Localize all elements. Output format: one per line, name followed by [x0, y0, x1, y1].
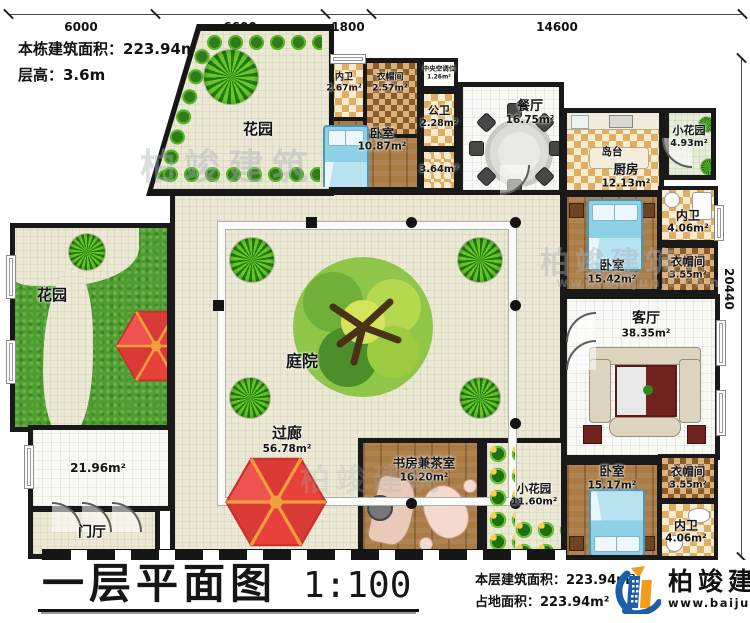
sofa — [609, 417, 681, 437]
floor-plan: 6000 6600 1800 14600 20440 本栋建筑面积：223.94… — [0, 0, 750, 623]
dim-top-4: 14600 — [536, 20, 578, 34]
room-garden-left — [10, 223, 172, 432]
window — [716, 390, 726, 436]
brand-logo-icon — [615, 564, 661, 614]
room-label: 内卫 4.06m² — [665, 519, 706, 546]
room-label: 客厅 38.35m² — [622, 311, 671, 340]
building-area-text: 本栋建筑面积：223.94m² — [18, 38, 203, 59]
brand-name: 柏竣建筑 — [668, 568, 750, 596]
room-label: 岛台 — [602, 146, 623, 158]
column — [306, 217, 317, 228]
rug — [615, 365, 677, 417]
brand-logo: 柏竣建筑 www.baijunjz.com — [615, 564, 750, 614]
sink-icon — [664, 192, 680, 208]
window — [24, 445, 34, 489]
room-label: 衣帽间 3.55m² — [669, 466, 707, 491]
room-label: 卧室 15.17m² — [588, 464, 637, 491]
stove-icon — [609, 115, 633, 128]
room-label: 公卫 2.28m² — [420, 105, 458, 129]
window — [330, 54, 366, 64]
palm-icon — [69, 234, 105, 270]
window — [6, 340, 16, 384]
room-label: 庭院 — [286, 353, 318, 372]
room-label: 21.96m² — [70, 461, 126, 475]
room-label: 3.64m² — [419, 164, 458, 176]
room-label: 厨房 12.13m² — [602, 162, 651, 189]
sink-icon — [571, 115, 589, 129]
plan-title: 一层平面图 — [42, 563, 277, 605]
palm-icon — [230, 378, 270, 418]
room-label: 过廊 56.78m² — [263, 425, 312, 455]
sofa — [679, 359, 701, 423]
room-label: 小花园 4.93m² — [670, 125, 708, 149]
dim-right: 20440 — [722, 268, 736, 310]
side-table — [687, 425, 706, 444]
room-label: 卧室 10.87m² — [358, 127, 407, 154]
palm-icon — [204, 50, 258, 104]
room-label: 餐厅 16.75m² — [506, 99, 555, 127]
palm-icon — [230, 238, 274, 282]
palm-icon — [458, 238, 502, 282]
window — [716, 320, 726, 366]
room-label: 中央空调位 1.26m² — [423, 66, 456, 81]
room-label: 小花园 11.60m² — [511, 482, 557, 507]
room-label: 内卫 2.67m² — [326, 72, 362, 93]
room-label: 衣帽间 3.55m² — [669, 256, 707, 281]
room-label: 花园 — [37, 287, 67, 305]
palm-icon — [460, 378, 500, 418]
dim-top-3: 1800 — [331, 20, 364, 34]
land-area-text: 占地面积：223.94m² — [475, 592, 635, 614]
column — [406, 498, 417, 509]
column — [406, 217, 417, 228]
column — [213, 300, 224, 311]
column — [510, 418, 521, 429]
room-label: 内卫 4.06m² — [667, 209, 708, 236]
area-summary: 本层建筑面积：223.94m² 占地面积：223.94m² — [475, 570, 635, 614]
room-label: 卧室 15.42m² — [588, 258, 637, 285]
window — [6, 255, 16, 299]
side-table — [583, 425, 602, 444]
nightstand — [569, 203, 584, 218]
bed — [589, 489, 645, 557]
bush-row — [160, 164, 320, 186]
brand-site: www.baijunjz.com — [668, 596, 750, 610]
dining-chair — [469, 141, 484, 156]
room-label: 花园 — [243, 121, 273, 139]
title-block: 一层平面图 1:100 本层建筑面积：223.94m² 占地面积：223.94m… — [0, 560, 750, 623]
floor-area-text: 本层建筑面积：223.94m² — [475, 570, 635, 592]
floor-height-text: 层高：3.6m — [18, 64, 105, 85]
umbrella-icon — [113, 306, 172, 386]
top-ruler-line — [8, 14, 742, 15]
window — [714, 205, 724, 241]
plan-scale: 1:100 — [303, 567, 411, 605]
room-label: 门厅 — [78, 525, 106, 542]
umbrella-icon — [222, 452, 330, 552]
room-label: 衣帽间 2.57m² — [372, 72, 408, 93]
courtyard-tree-icon — [288, 252, 438, 402]
room-label: 书房兼茶室 16.20m² — [393, 456, 456, 483]
column — [510, 300, 521, 311]
dim-top-1: 6000 — [64, 20, 97, 34]
plan-title-group: 一层平面图 1:100 — [38, 563, 419, 612]
nightstand — [569, 536, 584, 551]
right-ruler-line — [741, 58, 742, 558]
column — [510, 217, 521, 228]
